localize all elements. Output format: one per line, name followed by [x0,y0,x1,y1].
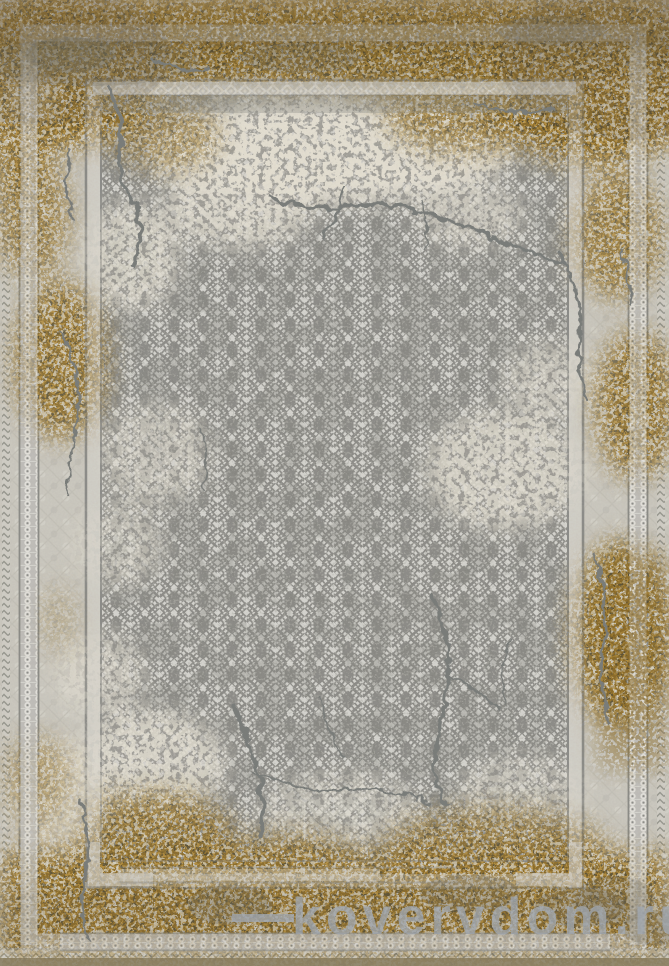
svg-text:kovervdom.ru: kovervdom.ru [292,888,669,946]
